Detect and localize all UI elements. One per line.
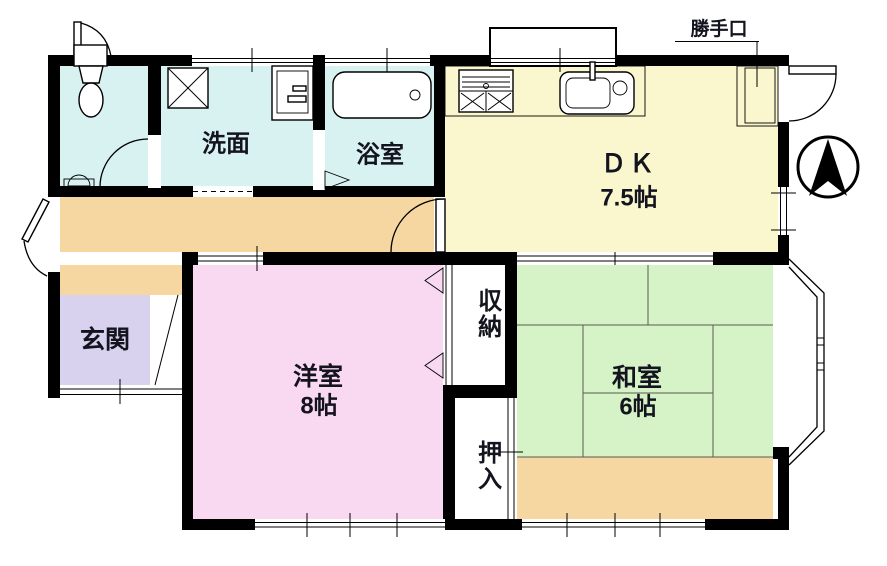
label-dk-size: 7.5帖 [600, 185, 657, 210]
north-arrow-icon [798, 137, 858, 197]
entrance-step [60, 252, 182, 265]
opening-side-door [48, 197, 60, 272]
opening-toilet-door [148, 135, 161, 188]
floor-plan-drawing [0, 0, 887, 566]
room-floors [60, 66, 778, 519]
hallway-floor [60, 197, 434, 252]
bay-window [789, 259, 824, 465]
opening-bath-door [313, 130, 325, 190]
opening-washroom [193, 186, 253, 197]
label-closet: 押入 [474, 440, 499, 492]
label-western-room-size: 8帖 [300, 393, 337, 418]
label-dk-name: ＤＫ [601, 151, 657, 177]
tatami-room-floor [517, 265, 773, 457]
label-storage: 収納 [474, 288, 499, 340]
veranda-floor [517, 457, 773, 519]
label-katteguchi: 勝手口 [690, 20, 747, 40]
opening-back-door [778, 66, 789, 122]
label-bathroom: 浴室 [356, 142, 404, 167]
door-dk-tatami-fusuma [517, 252, 713, 265]
label-washroom: 洗面 [202, 131, 250, 156]
label-western-room-name: 洋室 [293, 364, 343, 390]
floor-plan: 勝手口 洗面 浴室 ＤＫ 7.5帖 玄関 洋室 8帖 収納 押入 和室 6帖 [0, 0, 887, 566]
label-tatami-room-size: 6帖 [619, 394, 656, 419]
door-side-exterior [22, 199, 49, 276]
window-kitchen-bay [490, 28, 616, 72]
bathtub-icon [333, 72, 431, 118]
stove-icon [459, 70, 513, 112]
label-tatami-room-name: 和室 [612, 365, 662, 391]
entrance-hall-floor [60, 265, 182, 295]
washing-machine-pan-icon [168, 68, 208, 108]
vanity-sink-icon [272, 66, 313, 120]
label-genkan: 玄関 [80, 327, 130, 353]
